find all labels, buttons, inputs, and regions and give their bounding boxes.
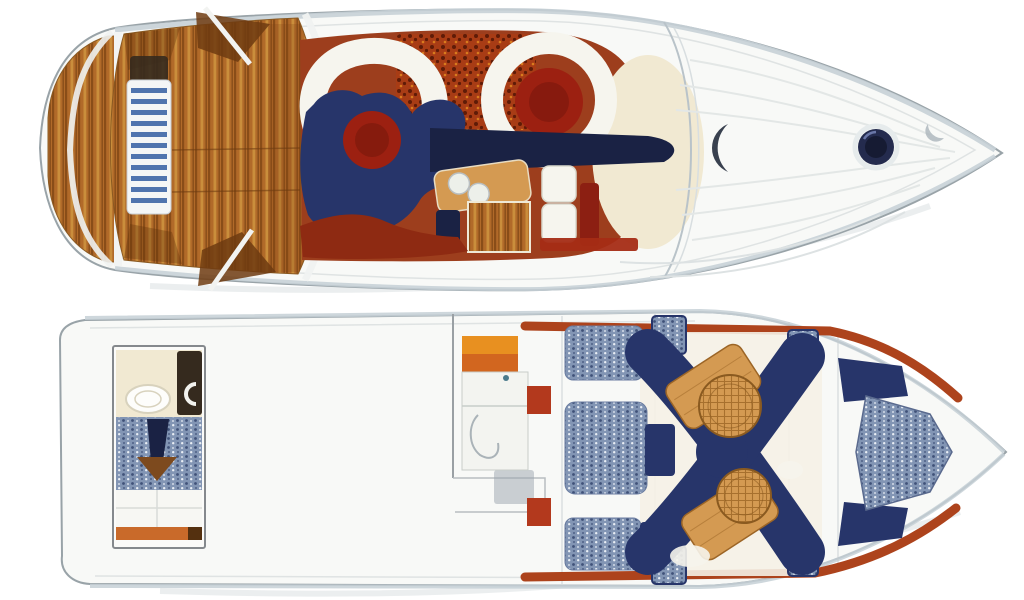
galley-down-tap: [503, 375, 509, 381]
lower-deck-plan: [60, 311, 1006, 594]
floorplan-svg: [0, 0, 1024, 600]
starboard-cockpit-table-shade: [529, 82, 569, 122]
salon-pillow-2: [777, 461, 803, 479]
helm-console: [580, 183, 599, 246]
aft-cabin-wardrobe: [177, 351, 202, 415]
galley-down-locker-top: [462, 336, 518, 354]
midcabin-nightstand-1: [527, 386, 551, 414]
vberth-headboard-top: [838, 358, 908, 402]
aft-cabin-cabinet-end: [188, 527, 202, 540]
helm-seat-1: [542, 166, 576, 202]
port-cockpit-table-shade: [355, 123, 389, 157]
main-deck-plan: [40, 8, 1002, 290]
ladder-shadow-cap: [130, 56, 168, 82]
midcabin-berth-main: [565, 402, 647, 494]
midcabin-nightstand-2: [527, 498, 551, 526]
galley-down-locker-bottom: [462, 354, 518, 372]
yacht-floorplan-image: [0, 0, 1024, 600]
aft-cabin-toilet: [126, 385, 170, 413]
aft-cabin: [113, 346, 205, 548]
cockpit-step-strip: [540, 238, 638, 251]
midcabin-headboard-main: [645, 424, 675, 476]
foredeck-hatch-inner: [865, 136, 887, 158]
salon-pillow-1: [670, 545, 710, 567]
helm-seat-2: [542, 204, 576, 242]
aft-cabin-cabinet-strip: [116, 527, 188, 540]
